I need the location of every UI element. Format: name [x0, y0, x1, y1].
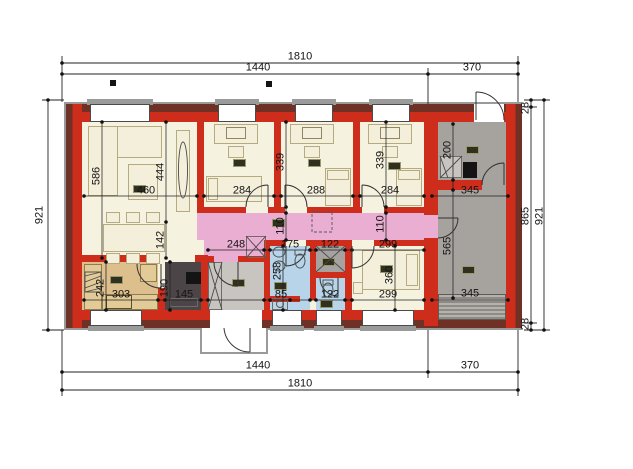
dim-living-width: 460: [137, 186, 155, 197]
dim-living-opening: 142: [156, 231, 167, 249]
dim-kitchen-depth: 242: [96, 279, 107, 297]
room-area-badge: [320, 300, 333, 308]
room-corridor: [197, 213, 424, 240]
wall-exterior-left: [66, 104, 82, 328]
dim-living-depth: 586: [92, 167, 103, 185]
room-area-badge: [308, 159, 321, 167]
room-area-badge: [110, 276, 123, 284]
attic-ladder: [440, 156, 462, 178]
dim-top-right: 370: [463, 63, 481, 74]
wall-bed4-garage: [424, 238, 438, 326]
dim-pantry-depth: 190: [160, 279, 171, 297]
chair: [126, 253, 140, 264]
window-sill: [360, 326, 416, 331]
dim-bedroom4-depth: 360: [385, 266, 396, 284]
wall-corridor-top: [307, 207, 362, 213]
dim-living-right-depth: 444: [156, 163, 167, 181]
dim-wc-width: 122: [321, 290, 339, 301]
wall-living-bed1: [197, 122, 204, 213]
window-sill: [270, 326, 304, 331]
door-gap-main-entrance: [210, 310, 262, 328]
pillow: [398, 170, 420, 180]
chair: [126, 212, 140, 223]
chair: [106, 253, 120, 264]
dim-left-total: 921: [35, 206, 46, 224]
window-bedroom1: [218, 104, 256, 122]
wall-bed3-utility: [424, 122, 438, 215]
room-area-badge: [232, 279, 245, 287]
window-bedroom4: [362, 310, 414, 326]
entrance-porch: [200, 328, 268, 354]
chair: [228, 146, 244, 158]
wall-corridor-top: [268, 207, 285, 213]
dim-bathroom-depth: 258: [273, 262, 284, 280]
room-area-badge: [322, 258, 335, 266]
wall-bed2-bed3: [353, 122, 360, 213]
nightstand: [353, 282, 363, 294]
dim-bedroom1-width: 284: [233, 186, 251, 197]
furnace: [186, 272, 201, 284]
fridge: [140, 264, 157, 282]
wall-pantry-vestibule: [201, 262, 208, 310]
dim-bottom-right: 370: [461, 361, 479, 372]
dim-utility-width: 345: [461, 186, 479, 197]
axis-marker: [266, 81, 272, 87]
dim-bedroom2-width: 288: [307, 186, 325, 197]
door-gap-corridor-garage: [424, 215, 438, 238]
dim-bathroom-lower-width: 85: [275, 290, 287, 301]
dim-bedroom1-depth: 339: [276, 153, 287, 171]
wardrobe: [208, 262, 222, 310]
tv-cabinet: [176, 130, 190, 212]
dim-bathroom-width: 175: [281, 240, 299, 251]
dim-bottom-left: 1440: [246, 361, 270, 372]
dim-bedroom3-width: 284: [381, 186, 399, 197]
window-bathroom: [272, 310, 302, 326]
dim-top-left: 1440: [246, 63, 270, 74]
dim-hall-width: 248: [227, 240, 245, 251]
monitor: [380, 127, 400, 139]
chair: [146, 253, 160, 264]
dim-right-wall-top: 28: [521, 102, 532, 114]
window-sill: [88, 326, 144, 331]
chair: [304, 146, 320, 158]
room-area-badge: [233, 159, 246, 167]
wall-corridor-top: [384, 207, 424, 213]
window-wc: [316, 310, 342, 326]
window-bedroom3: [372, 104, 410, 122]
pillow: [406, 254, 418, 286]
dim-pantry-width: 145: [175, 290, 193, 301]
dim-shower-width: 122: [321, 240, 339, 251]
monitor: [302, 127, 322, 139]
chair: [146, 212, 160, 223]
window-bedroom2: [295, 104, 333, 122]
dim-garage-width: 345: [461, 289, 479, 300]
wall-pantry-top: [195, 255, 208, 262]
pillow: [327, 170, 349, 180]
room-area-badge: [388, 162, 401, 170]
dim-hall-height-right: 110: [376, 215, 387, 233]
window-kitchen: [90, 310, 142, 326]
window-living: [90, 104, 150, 122]
dim-right-wall-bottom: 28: [521, 318, 532, 330]
monitor: [226, 127, 246, 139]
axis-marker: [110, 80, 116, 86]
dim-hall-height-left: 110: [276, 217, 287, 235]
dim-right-total: 921: [535, 207, 546, 225]
boiler: [463, 162, 477, 178]
dim-top-total: 1810: [288, 52, 312, 63]
dim-bedroom3-depth: 339: [376, 151, 387, 169]
wall-shower-wc: [316, 272, 345, 278]
wall-bath-wc: [310, 240, 316, 300]
pillow: [208, 178, 218, 200]
sofa: [88, 126, 118, 196]
dim-right-interior: 865: [521, 207, 532, 225]
wardrobe: [246, 236, 266, 258]
door-gap-utility-garage: [482, 180, 506, 190]
dim-bottom-total: 1810: [288, 379, 312, 390]
dim-bedroom4-width-bottom: 299: [379, 290, 397, 301]
wall-wc-bed4: [345, 240, 352, 310]
dim-kitchen-width: 303: [112, 290, 130, 301]
window-sill: [314, 326, 344, 331]
dim-utility-depth: 200: [443, 141, 454, 159]
door-gap-entrance: [474, 104, 504, 122]
dim-bedroom4-width-top: 299: [379, 240, 397, 251]
wall-corridor-top: [197, 207, 246, 213]
dim-garage-depth: 565: [443, 237, 454, 255]
chair: [106, 212, 120, 223]
floor-plan-canvas: 1810 1440 370 1440 370 1810 921 28 865 9…: [0, 0, 633, 469]
room-area-badge: [462, 266, 475, 274]
room-area-badge: [466, 146, 479, 154]
